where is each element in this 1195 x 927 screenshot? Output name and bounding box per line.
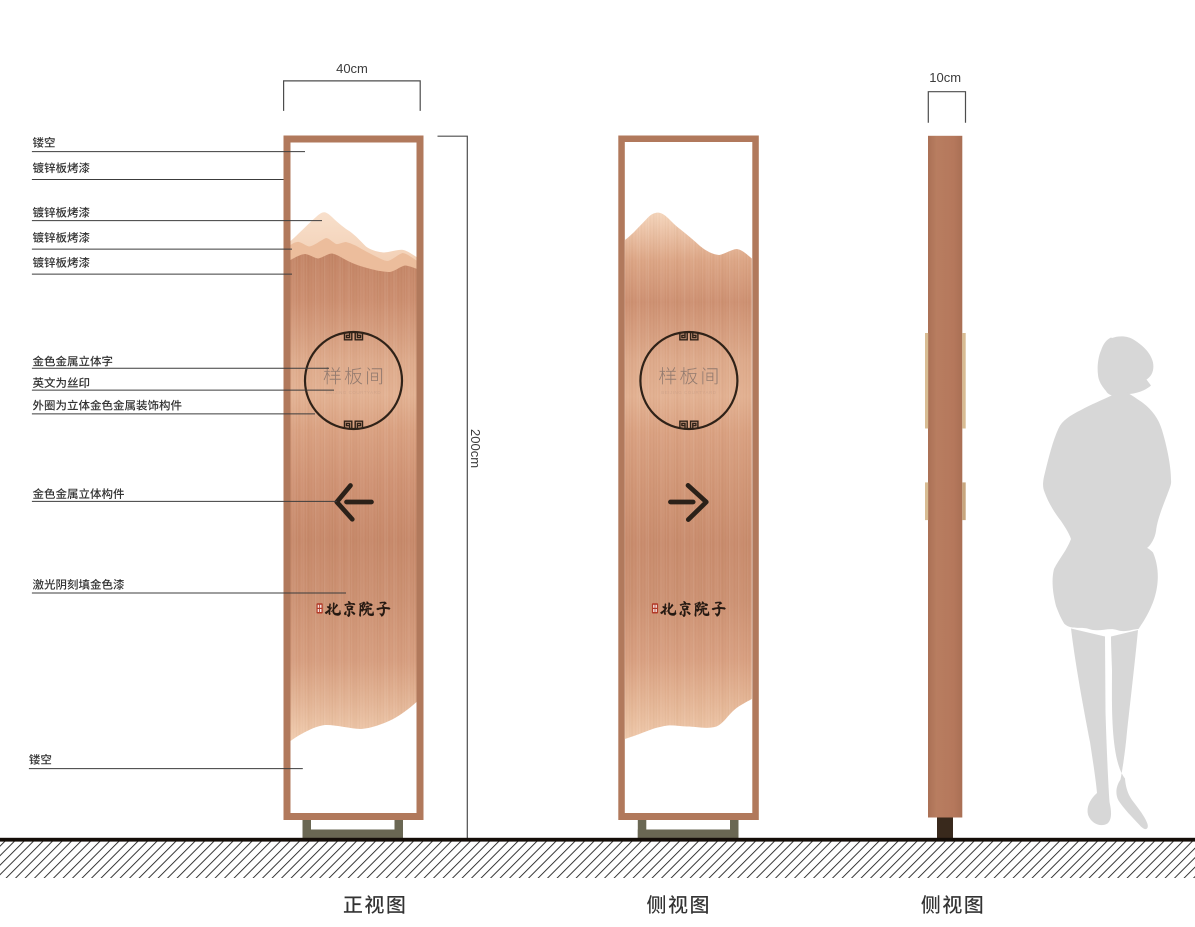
svg-text:200cm: 200cm <box>468 429 483 468</box>
svg-text:40cm: 40cm <box>336 61 368 76</box>
svg-text:10cm: 10cm <box>929 70 961 85</box>
svg-text:BEIJING COURTYARD: BEIJING COURTYARD <box>326 390 382 395</box>
svg-text:BEIJING COURTYARD: BEIJING COURTYARD <box>661 390 717 395</box>
